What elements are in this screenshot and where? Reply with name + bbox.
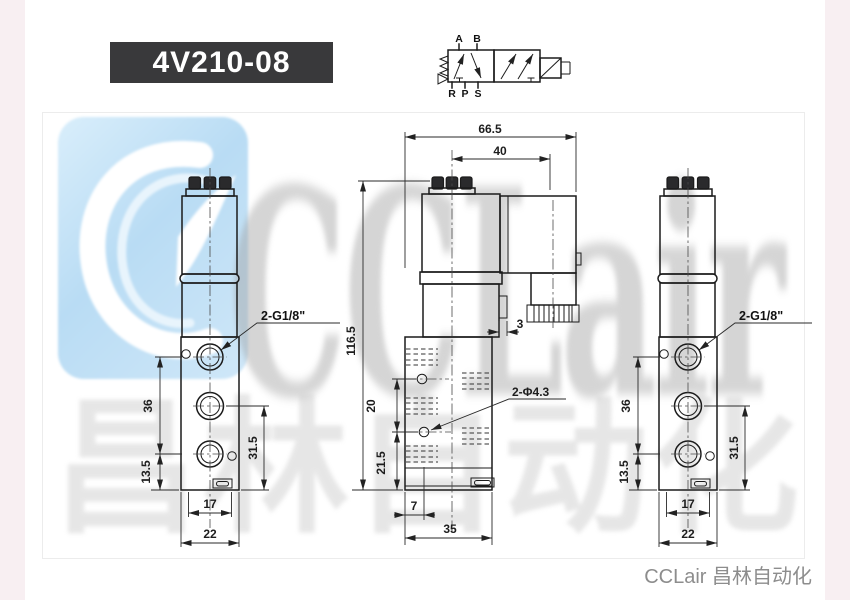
dim-20: 20 [364,399,378,413]
view-front-right [658,168,717,528]
dim-40: 40 [493,144,507,158]
view-front-left [180,168,239,528]
dim-31-5: 31.5 [246,436,260,460]
port-label-p: P [461,88,468,100]
dim-17: 17 [681,497,695,511]
dim-21-5: 21.5 [374,451,388,475]
din-connector [500,196,581,322]
dim-22: 22 [681,527,695,541]
dim-116-5: 116.5 [344,326,358,356]
port-label-a: A [455,33,463,45]
solenoid-icon [540,58,570,78]
spring-return-icon [440,56,448,76]
dim-36: 36 [619,399,633,413]
dims-front-right: 36 13.5 31.5 17 22 2-G1/8" [617,309,812,547]
port-label-b: B [473,33,481,45]
dim-36: 36 [141,399,155,413]
hidden-port-lines [406,349,490,462]
dim-22: 22 [203,527,217,541]
dim-13-5: 13.5 [139,460,153,484]
page: CCLair 昌林自动化 4V210-08 [0,0,850,600]
valve-symbol-5-2: A B R P S [438,33,570,100]
thread-label-left: 2-G1/8" [261,309,305,323]
view-side-middle [405,150,581,532]
hole-label: 2-Φ4.3 [512,385,550,399]
dim-35: 35 [443,522,457,536]
dim-17: 17 [203,497,217,511]
port-label-r: R [448,88,456,100]
thread-label-right: 2-G1/8" [739,309,783,323]
technical-drawing: A B R P S [0,0,850,600]
port-label-s: S [474,88,481,100]
dim-66-5: 66.5 [478,122,502,136]
footer-brand-caption: CCLair 昌林自动化 [644,560,812,589]
dim-13-5: 13.5 [617,460,631,484]
dim-7: 7 [411,499,418,513]
dim-3: 3 [517,317,524,331]
dim-31-5: 31.5 [727,436,741,460]
